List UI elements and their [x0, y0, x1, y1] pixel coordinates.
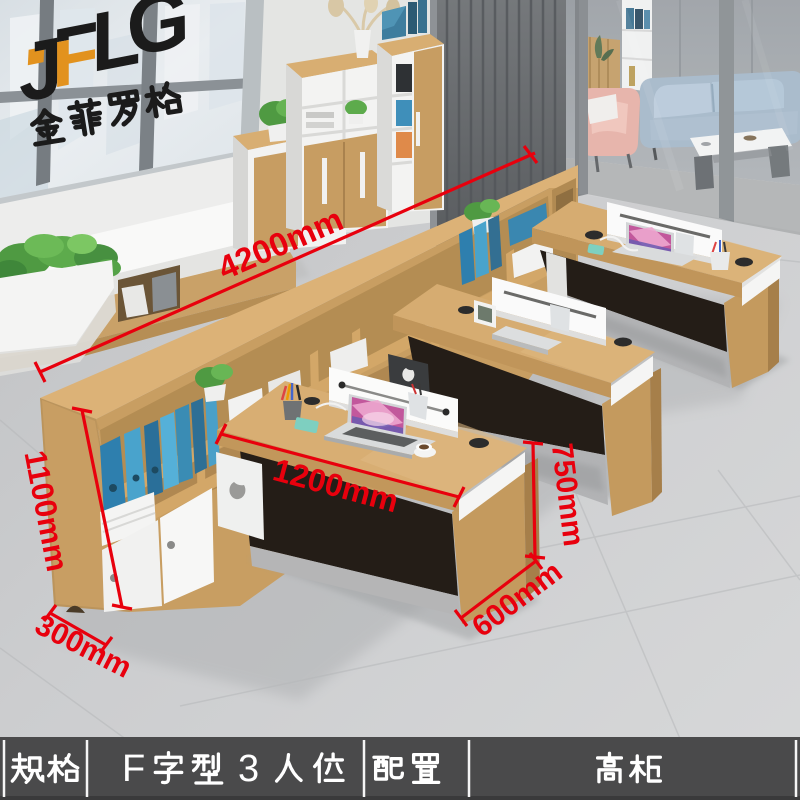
- svg-text:F: F: [122, 748, 145, 790]
- svg-text:3: 3: [238, 748, 259, 790]
